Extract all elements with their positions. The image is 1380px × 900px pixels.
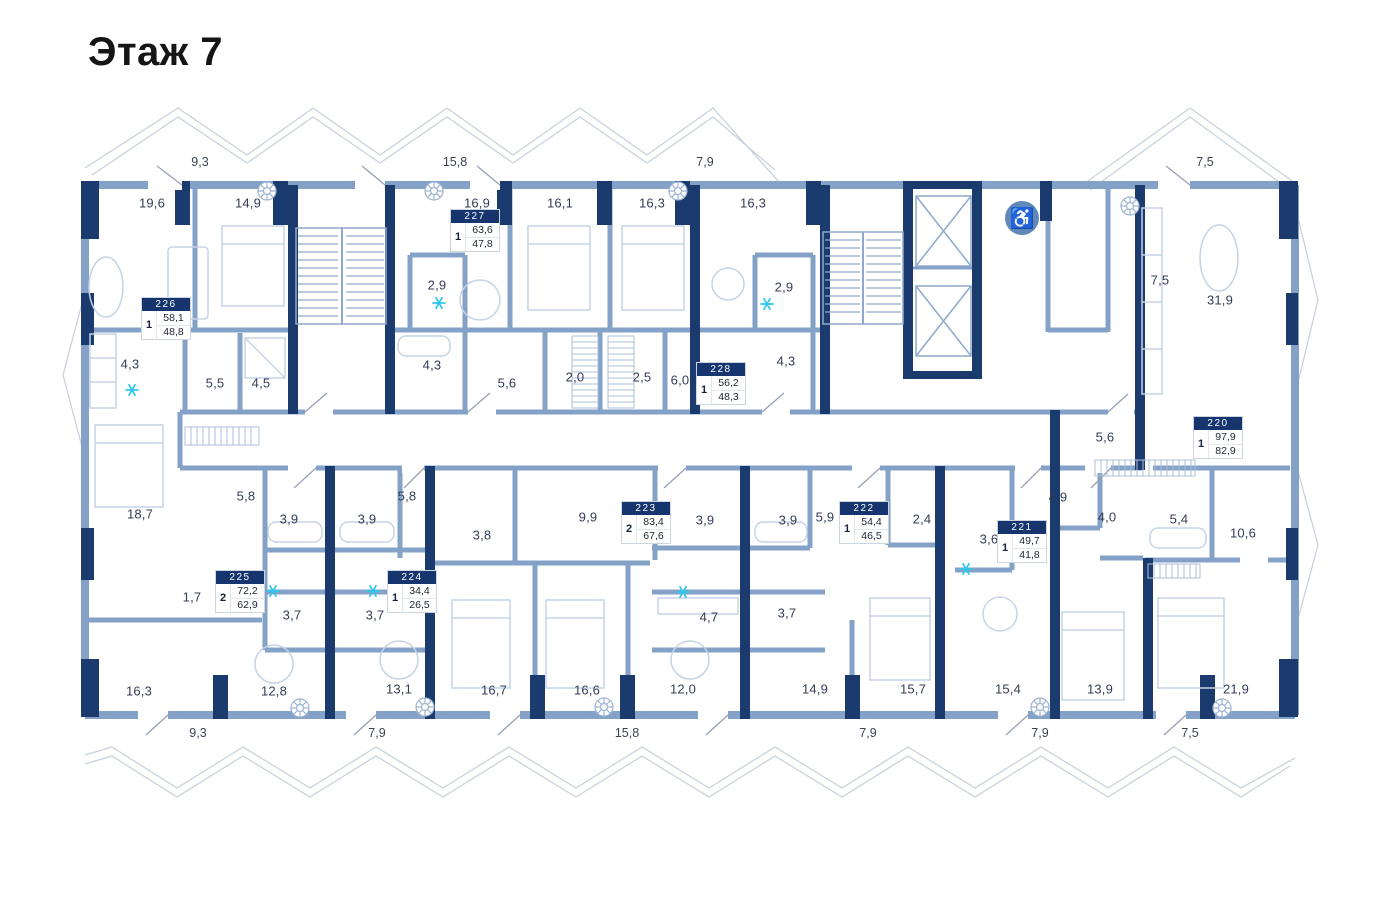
- room-area-label: 3,9: [280, 512, 299, 527]
- room-area-label: 5,5: [206, 376, 225, 391]
- labels-overlay: 19,614,916,916,116,316,37,531,92,92,94,3…: [0, 0, 1380, 900]
- room-area-label: 4,9: [1049, 490, 1068, 505]
- apartment-area-living: 41,8: [1013, 548, 1046, 563]
- dimension-label-bottom: 7,9: [859, 726, 876, 740]
- apartment-room-count: 1: [142, 311, 157, 339]
- room-area-label: 3,7: [366, 608, 385, 623]
- room-area-label: 3,7: [283, 608, 302, 623]
- dimension-label-top: 7,5: [1196, 155, 1213, 169]
- room-area-label: 5,8: [398, 489, 417, 504]
- room-area-label: 5,6: [1096, 430, 1115, 445]
- room-area-label: 4,0: [1098, 510, 1117, 525]
- room-area-label: 5,4: [1170, 512, 1189, 527]
- room-area-label: 16,7: [481, 683, 507, 698]
- room-area-label: 16,1: [547, 196, 573, 211]
- room-area-label: 21,9: [1223, 682, 1249, 697]
- room-area-label: 9,9: [579, 510, 598, 525]
- room-area-label: 3,9: [779, 513, 798, 528]
- room-area-label: 31,9: [1207, 293, 1233, 308]
- dimension-label-bottom: 15,8: [615, 726, 639, 740]
- room-area-label: 3,6: [980, 532, 999, 547]
- apartment-area-total: 63,6: [466, 223, 499, 237]
- apartment-area-total: 56,2: [712, 376, 745, 390]
- room-area-label: 16,6: [574, 683, 600, 698]
- dimension-label-top: 15,8: [443, 155, 467, 169]
- room-area-label: 5,9: [816, 510, 835, 525]
- apartment-areas: 272,262,9: [216, 584, 264, 612]
- apartment-areas: 134,426,5: [388, 584, 436, 612]
- room-area-label: 12,8: [261, 684, 287, 699]
- room-area-label: 15,4: [995, 682, 1021, 697]
- apartment-room-count: 1: [697, 376, 712, 404]
- apartment-area-living: 62,9: [231, 598, 264, 613]
- apartment-area-living: 48,3: [712, 390, 745, 405]
- apartment-area-total: 34,4: [403, 584, 436, 598]
- apartment-area-living: 47,8: [466, 237, 499, 252]
- room-area-label: 15,7: [900, 682, 926, 697]
- apartment-number: 227: [451, 210, 499, 223]
- apartment-card-228: 228156,248,3: [697, 363, 745, 404]
- dimension-label-bottom: 7,9: [1031, 726, 1048, 740]
- room-area-label: 4,3: [777, 354, 796, 369]
- apartment-number: 224: [388, 571, 436, 584]
- apartment-number: 226: [142, 298, 190, 311]
- apartment-card-222: 222154,446,5: [840, 502, 888, 543]
- room-area-label: 4,7: [700, 610, 719, 625]
- apartment-area-total: 72,2: [231, 584, 264, 598]
- dimension-label-bottom: 9,3: [189, 726, 206, 740]
- apartment-number: 223: [622, 502, 670, 515]
- apartment-card-226: 226158,148,8: [142, 298, 190, 339]
- room-area-label: 12,0: [670, 682, 696, 697]
- apartment-area-living: 82,9: [1209, 444, 1242, 459]
- apartment-areas: 149,741,8: [998, 534, 1046, 562]
- room-area-label: 16,3: [740, 196, 766, 211]
- room-area-label: 3,9: [358, 512, 377, 527]
- dimension-label-bottom: 7,5: [1181, 726, 1198, 740]
- apartment-areas: 163,647,8: [451, 223, 499, 251]
- apartment-card-225: 225272,262,9: [216, 571, 264, 612]
- room-area-label: 14,9: [235, 196, 261, 211]
- apartment-area-living: 26,5: [403, 598, 436, 613]
- apartment-room-count: 1: [388, 584, 403, 612]
- room-area-label: 2,4: [913, 512, 932, 527]
- apartment-area-total: 97,9: [1209, 430, 1242, 444]
- room-area-label: 6,0: [671, 373, 690, 388]
- dimension-label-bottom: 7,9: [368, 726, 385, 740]
- room-area-label: 3,8: [473, 528, 492, 543]
- wheelchair-accessibility-icon: ♿: [1005, 201, 1039, 235]
- apartment-room-count: 2: [216, 584, 231, 612]
- room-area-label: 14,9: [802, 682, 828, 697]
- room-area-label: 2,5: [633, 370, 652, 385]
- room-area-label: 18,7: [127, 507, 153, 522]
- room-area-label: 16,9: [464, 196, 490, 211]
- apartment-number: 225: [216, 571, 264, 584]
- apartment-areas: 158,148,8: [142, 311, 190, 339]
- room-area-label: 4,3: [423, 358, 442, 373]
- floor-plan-page: Этаж 7: [0, 0, 1380, 900]
- room-area-label: 2,9: [775, 280, 794, 295]
- apartment-area-living: 46,5: [855, 529, 888, 544]
- apartment-room-count: 1: [451, 223, 466, 251]
- dimension-label-top: 7,9: [696, 155, 713, 169]
- room-area-label: 2,0: [566, 370, 585, 385]
- room-area-label: 10,6: [1230, 526, 1256, 541]
- apartment-card-220: 220197,982,9: [1194, 417, 1242, 458]
- apartment-areas: 154,446,5: [840, 515, 888, 543]
- apartment-room-count: 1: [998, 534, 1013, 562]
- apartment-number: 222: [840, 502, 888, 515]
- room-area-label: 13,1: [386, 682, 412, 697]
- apartment-areas: 197,982,9: [1194, 430, 1242, 458]
- room-area-label: 4,3: [121, 357, 140, 372]
- apartment-card-224: 224134,426,5: [388, 571, 436, 612]
- room-area-label: 5,8: [237, 489, 256, 504]
- apartment-number: 221: [998, 521, 1046, 534]
- room-area-label: 1,7: [183, 590, 202, 605]
- apartment-areas: 156,248,3: [697, 376, 745, 404]
- room-area-label: 3,7: [778, 606, 797, 621]
- apartment-area-total: 58,1: [157, 311, 190, 325]
- apartment-area-total: 49,7: [1013, 534, 1046, 548]
- room-area-label: 13,9: [1087, 682, 1113, 697]
- room-area-label: 3,9: [696, 513, 715, 528]
- wheelchair-glyph: ♿: [1010, 206, 1035, 231]
- apartment-card-223: 223283,467,6: [622, 502, 670, 543]
- apartment-room-count: 1: [1194, 430, 1209, 458]
- apartment-card-221: 221149,741,8: [998, 521, 1046, 562]
- apartment-number: 228: [697, 363, 745, 376]
- apartment-areas: 283,467,6: [622, 515, 670, 543]
- room-area-label: 16,3: [639, 196, 665, 211]
- room-area-label: 4,5: [252, 376, 271, 391]
- apartment-area-living: 67,6: [637, 529, 670, 544]
- room-area-label: 16,3: [126, 684, 152, 699]
- apartment-area-total: 83,4: [637, 515, 670, 529]
- room-area-label: 2,9: [428, 278, 447, 293]
- apartment-room-count: 1: [840, 515, 855, 543]
- apartment-number: 220: [1194, 417, 1242, 430]
- apartment-area-total: 54,4: [855, 515, 888, 529]
- room-area-label: 19,6: [139, 196, 165, 211]
- apartment-card-227: 227163,647,8: [451, 210, 499, 251]
- apartment-room-count: 2: [622, 515, 637, 543]
- dimension-label-top: 9,3: [191, 155, 208, 169]
- apartment-area-living: 48,8: [157, 325, 190, 340]
- room-area-label: 7,5: [1151, 273, 1170, 288]
- room-area-label: 5,6: [498, 376, 517, 391]
